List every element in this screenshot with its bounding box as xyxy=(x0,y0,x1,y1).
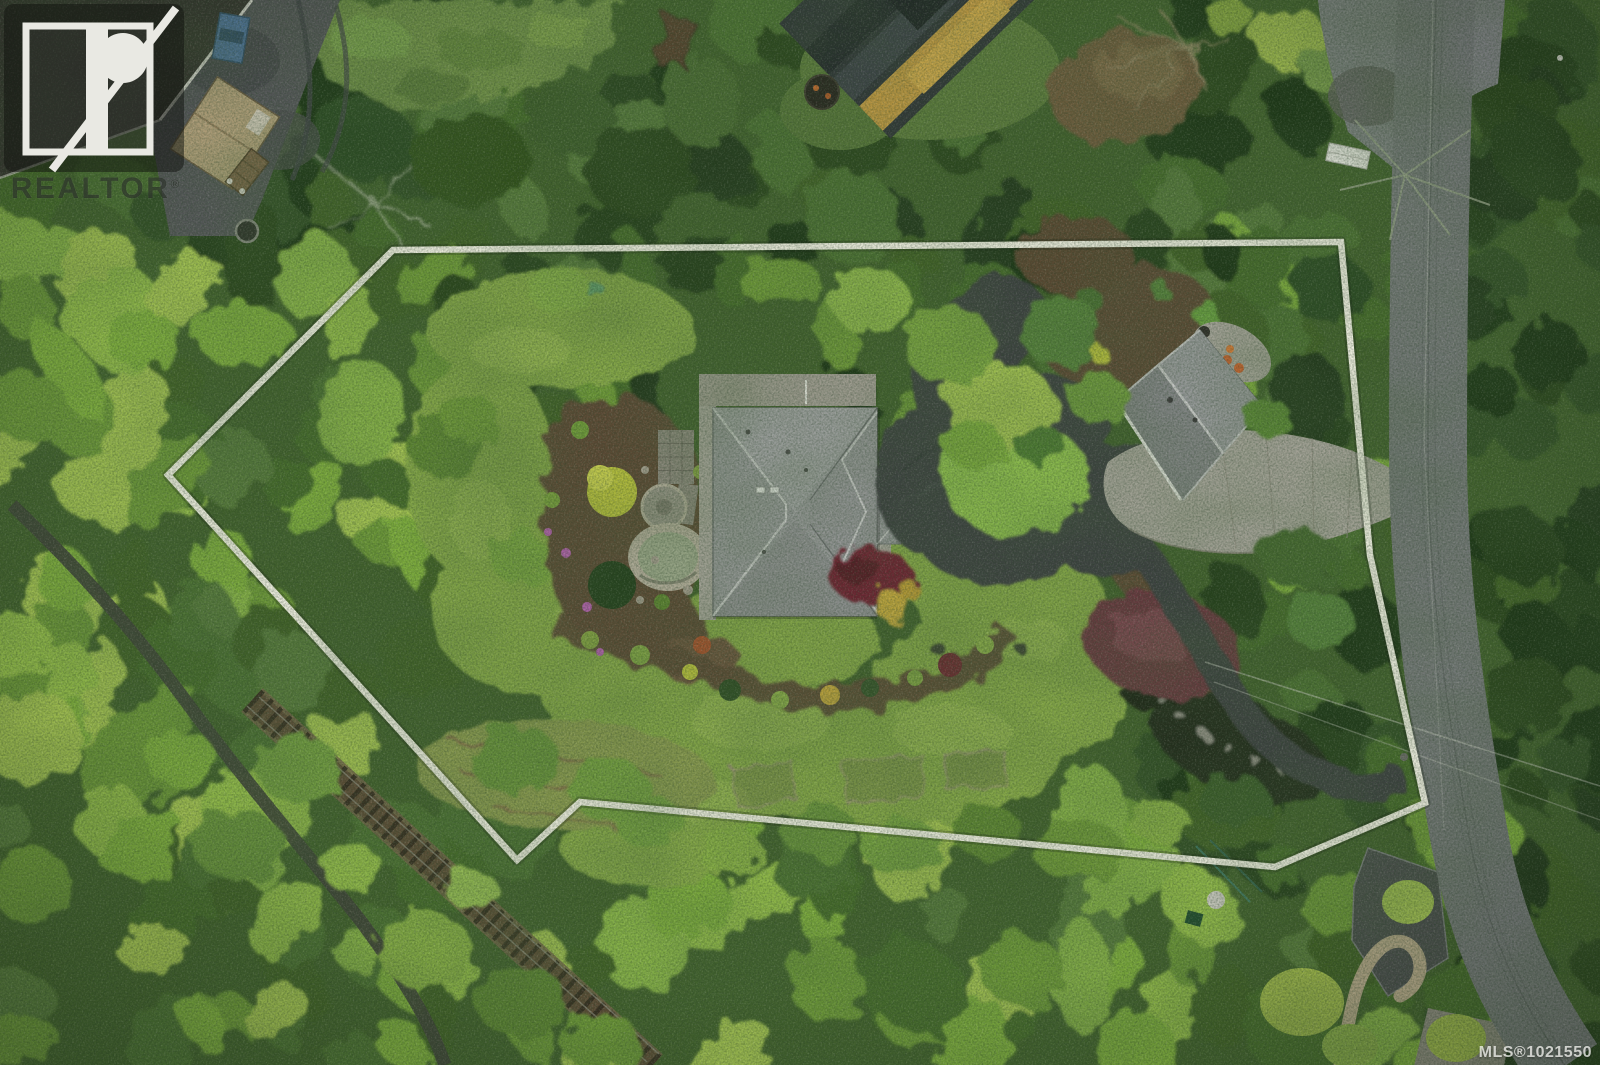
realtor-logo-text: REALTOR® xyxy=(2,172,188,206)
photo-grain xyxy=(0,0,1600,1065)
realtor-block-r-icon xyxy=(2,2,188,174)
registered-trademark-symbol: ® xyxy=(170,177,179,191)
mls-number-watermark: MLS®1021550 xyxy=(1479,1044,1592,1062)
aerial-scene xyxy=(0,0,1600,1065)
aerial-photo: REALTOR® MLS®1021550 xyxy=(0,0,1600,1065)
realtor-wordmark: REALTOR xyxy=(11,172,171,205)
realtor-watermark: REALTOR® xyxy=(2,2,188,214)
